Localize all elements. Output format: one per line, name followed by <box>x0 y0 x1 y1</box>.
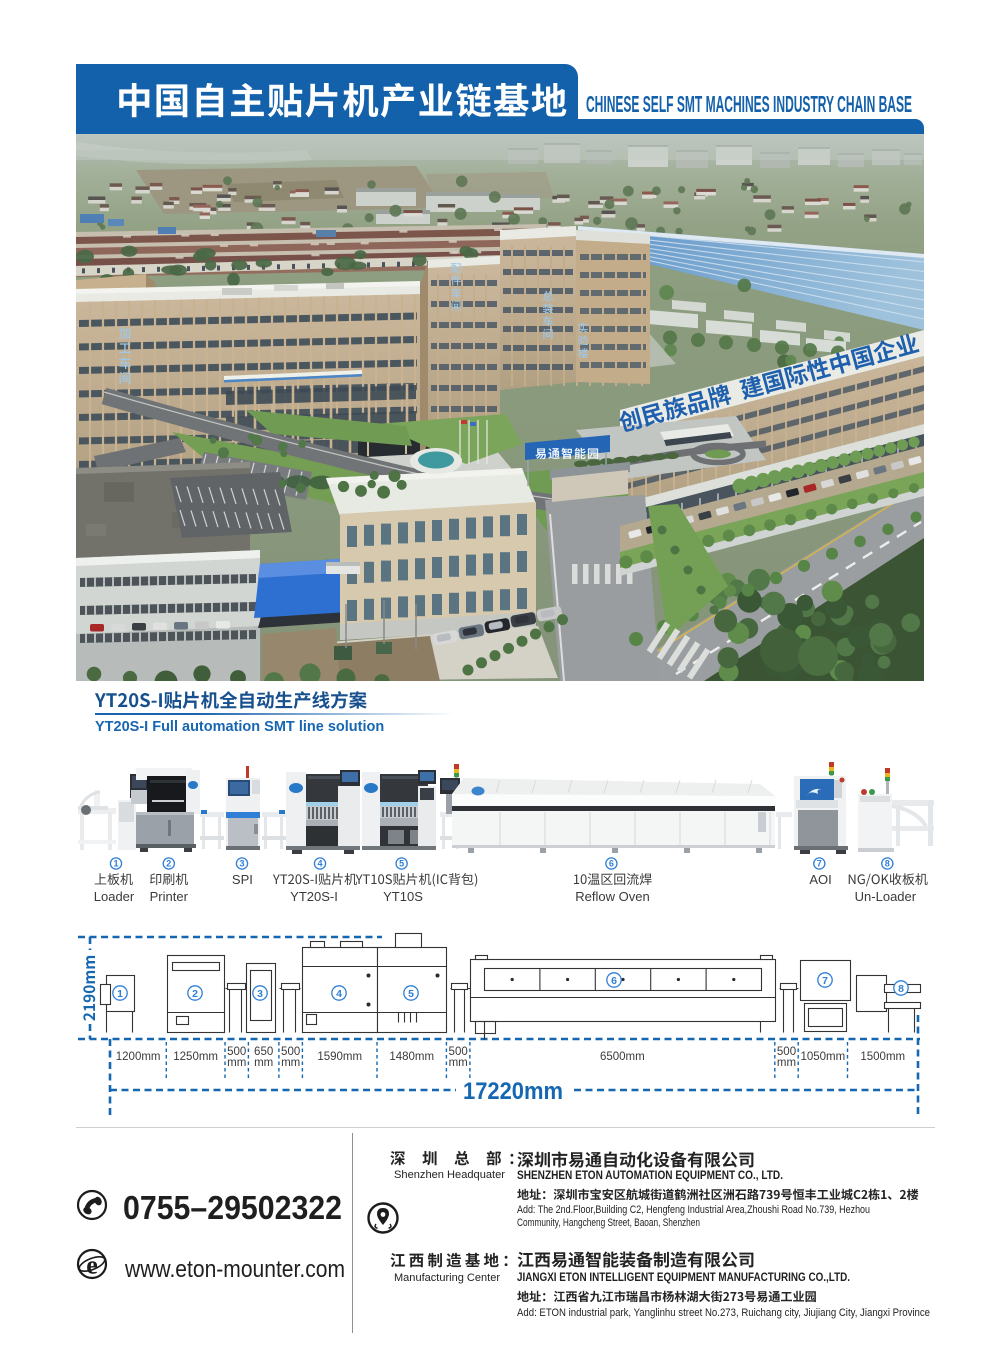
svg-text:1590mm: 1590mm <box>317 1051 362 1063</box>
svg-text:www.eton-mounter.com: www.eton-mounter.com <box>124 1256 345 1283</box>
svg-text:1: 1 <box>117 988 123 1000</box>
svg-text:Manufacturing Center: Manufacturing Center <box>394 1272 500 1284</box>
svg-text:6500mm: 6500mm <box>600 1051 645 1063</box>
svg-text:Printer: Printer <box>150 889 189 904</box>
svg-text:1500mm: 1500mm <box>860 1051 905 1063</box>
svg-text:mm: mm <box>254 1057 273 1069</box>
svg-text:1: 1 <box>113 859 118 869</box>
svg-text:e: e <box>86 1251 98 1280</box>
svg-text:3: 3 <box>239 859 244 869</box>
svg-text:6: 6 <box>609 859 614 869</box>
svg-text:Add: The 2nd.Floor,Building C2: Add: The 2nd.Floor,Building C2, Hengfeng… <box>517 1204 870 1216</box>
svg-text:mm: mm <box>777 1057 796 1069</box>
svg-text:Add: ETON industrial park, Yan: Add: ETON industrial park, Yanglinhu str… <box>517 1307 930 1319</box>
svg-text:7: 7 <box>822 975 828 987</box>
svg-text:AOI: AOI <box>809 872 831 887</box>
svg-text:1050mm: 1050mm <box>800 1051 845 1063</box>
svg-text:CHINESE SELF SMT MACHINES INDU: CHINESE SELF SMT MACHINES INDUSTRY CHAIN… <box>586 91 912 117</box>
svg-text:4: 4 <box>317 859 322 869</box>
svg-text:Un-Loader: Un-Loader <box>855 889 917 904</box>
svg-text:0755–29502322: 0755–29502322 <box>123 1189 342 1226</box>
svg-text:mm: mm <box>449 1057 468 1069</box>
svg-text:mm: mm <box>227 1057 246 1069</box>
svg-text:YT10S: YT10S <box>383 889 423 904</box>
svg-text:5: 5 <box>399 859 404 869</box>
svg-text:2: 2 <box>166 859 171 869</box>
svg-text:5: 5 <box>408 988 414 1000</box>
svg-text:Loader: Loader <box>94 889 135 904</box>
svg-text:8: 8 <box>885 859 890 869</box>
svg-text:1200mm: 1200mm <box>116 1051 161 1063</box>
svg-text:JIANGXI ETON INTELLIGENT EQUIP: JIANGXI ETON INTELLIGENT EQUIPMENT MANUF… <box>517 1272 850 1284</box>
svg-text:2: 2 <box>192 988 198 1000</box>
svg-text:SHENZHEN ETON AUTOMATION EQUIP: SHENZHEN ETON AUTOMATION EQUIPMENT CO., … <box>517 1170 783 1182</box>
svg-text:YT20S-I: YT20S-I <box>290 889 338 904</box>
svg-text:Community, Hangcheng Street, B: Community, Hangcheng Street, Baoan, Shen… <box>517 1217 700 1229</box>
svg-text:Shenzhen Headquater: Shenzhen Headquater <box>394 1169 505 1181</box>
svg-text:Reflow Oven: Reflow Oven <box>575 889 649 904</box>
svg-text:7: 7 <box>817 859 822 869</box>
svg-text:4: 4 <box>336 988 342 1000</box>
svg-text:6: 6 <box>611 975 617 987</box>
svg-text:8: 8 <box>898 983 904 995</box>
svg-text:3: 3 <box>257 988 263 1000</box>
svg-text:1250mm: 1250mm <box>173 1051 218 1063</box>
svg-text:SPI: SPI <box>232 872 253 887</box>
svg-text:mm: mm <box>281 1057 300 1069</box>
svg-text:1480mm: 1480mm <box>389 1051 434 1063</box>
svg-text:17220mm: 17220mm <box>463 1078 563 1105</box>
